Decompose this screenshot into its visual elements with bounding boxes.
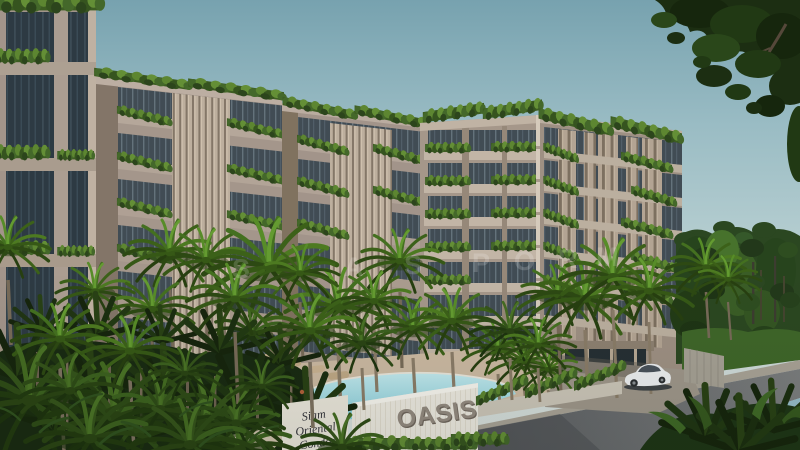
svg-text:S: S xyxy=(232,254,250,284)
svg-text:M: M xyxy=(596,242,619,272)
svg-text:R: R xyxy=(558,244,578,274)
svg-text:S: S xyxy=(404,250,422,280)
svg-text:P: P xyxy=(472,248,490,278)
svg-text:O: O xyxy=(514,246,535,276)
svg-text:A: A xyxy=(344,252,364,282)
